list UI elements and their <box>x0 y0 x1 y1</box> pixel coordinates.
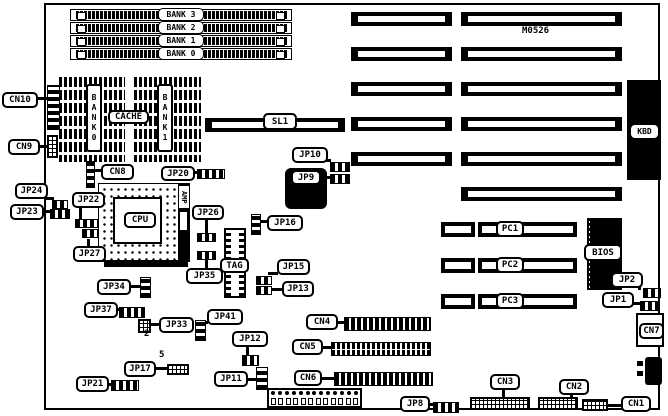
jp15-label: JP15 <box>277 259 310 275</box>
jp23-label: JP23 <box>10 204 44 220</box>
motherboard-diagram: BANK 3 BANK 2 BANK 1 BANK 0 BANK0 BANK1 … <box>0 0 668 416</box>
jp27-label: JP27 <box>73 246 106 262</box>
bank2-label: BANK 2 <box>158 21 204 34</box>
jp35-label: JP35 <box>186 268 223 284</box>
jp20-label: JP20 <box>161 166 195 181</box>
jp41-jumper <box>195 320 206 341</box>
isa-slot <box>461 117 622 131</box>
jp17-jumper <box>167 364 189 375</box>
isa-slot <box>461 187 622 201</box>
jp12-jumper <box>242 355 259 366</box>
cn6-label: CN6 <box>294 370 322 386</box>
cn2-header <box>538 397 578 410</box>
model-number: M0526 <box>522 26 549 36</box>
cn8-label: CN8 <box>101 164 134 180</box>
cn2-label: CN2 <box>559 379 589 395</box>
jp35-jumper <box>197 251 216 260</box>
amp-chip-slot <box>180 212 187 230</box>
cn4-connector <box>344 317 431 331</box>
leader-line <box>268 272 278 275</box>
jp24-label: JP24 <box>15 183 48 199</box>
tag-label: TAG <box>220 258 249 273</box>
jp10-label: JP10 <box>292 147 328 163</box>
isa-slot <box>351 47 452 61</box>
isa-slot <box>351 117 452 131</box>
cpu-bottom-bar <box>104 260 188 267</box>
bios-label: BIOS <box>584 244 622 261</box>
bank0-label: BANK 0 <box>158 47 204 60</box>
pc2-label: PC2 <box>496 257 524 273</box>
pci-slot-seg <box>478 294 577 309</box>
jp22-jumper <box>75 219 99 228</box>
leader-line <box>154 367 168 370</box>
jp8-label: JP8 <box>400 396 430 412</box>
kbd-label: KBD <box>630 124 659 139</box>
sl1-label: SL1 <box>263 113 297 130</box>
jp37-label: JP37 <box>84 302 118 318</box>
cn10-label: CN10 <box>2 92 38 108</box>
pci-slot-seg <box>478 258 577 273</box>
jp16-jumper <box>251 214 261 235</box>
jp24-jumper <box>52 200 68 209</box>
cn9-label: CN9 <box>8 139 40 155</box>
cn10-connector <box>47 85 60 130</box>
cn1-header <box>582 399 608 411</box>
jp9-label: JP9 <box>291 170 321 185</box>
jp1-jumper <box>640 301 660 311</box>
bank3-label: BANK 3 <box>158 8 204 21</box>
edge-connector <box>645 357 662 385</box>
leader-line <box>37 97 47 100</box>
cn9-connector <box>47 135 58 158</box>
jp1-label: JP1 <box>602 292 634 308</box>
power-connector <box>267 388 362 408</box>
jp41-label: JP41 <box>207 309 243 325</box>
cn8-connector <box>86 161 95 188</box>
isa-slot <box>461 12 622 26</box>
cache-bank0-label: BANK0 <box>86 84 102 152</box>
jp22-jumper2 <box>82 229 99 238</box>
jp26-jumper <box>197 233 216 242</box>
jp11-label: JP11 <box>214 371 248 387</box>
jp21-jumper <box>111 380 139 391</box>
jp16-label: JP16 <box>267 215 303 231</box>
cn5-label: CN5 <box>292 339 323 355</box>
cn1-label: CN1 <box>621 396 651 412</box>
jp34-jumper <box>140 277 151 298</box>
isa-slot <box>351 82 452 96</box>
cpu-label: CPU <box>124 212 156 228</box>
edge-connector-pin <box>637 371 643 376</box>
leader-line <box>607 404 622 407</box>
jp9-jumper <box>330 174 350 184</box>
jp15-jumper <box>256 276 272 285</box>
pci-slot-seg <box>441 258 475 273</box>
isa-slot <box>461 47 622 61</box>
pc3-label: PC3 <box>496 293 524 309</box>
isa-slot <box>461 152 622 166</box>
jp23-jumper <box>50 209 70 219</box>
jp26-label: JP26 <box>192 205 224 220</box>
isa-slot <box>351 12 452 26</box>
jp11-jumper <box>256 367 268 390</box>
isa-slot <box>351 152 452 166</box>
jp10-jumper <box>330 162 350 172</box>
jp33-pin1-number: 2 <box>144 329 149 339</box>
jp2-label: JP2 <box>611 272 643 288</box>
jp33-label: JP33 <box>159 317 194 333</box>
jp17-pin1-number: 5 <box>159 350 164 360</box>
edge-connector-pin <box>637 361 643 366</box>
jp2-jumper <box>643 288 661 298</box>
pci-slot-seg <box>441 294 475 309</box>
jp12-label: JP12 <box>232 331 268 347</box>
leader-line <box>205 218 208 234</box>
jp21-label: JP21 <box>76 376 109 392</box>
jp20-jumper <box>197 169 225 179</box>
jp8-jumper <box>433 402 459 413</box>
jp22-label: JP22 <box>72 192 105 208</box>
cache-bank1-label: BANK1 <box>157 84 173 152</box>
jp13-label: JP13 <box>282 281 314 297</box>
jp13-jumper <box>256 286 272 295</box>
cn6-connector <box>334 372 433 386</box>
jp17-label: JP17 <box>124 361 156 377</box>
pci-slot-seg <box>441 222 475 237</box>
cn3-label: CN3 <box>490 374 520 390</box>
cn3-header <box>470 397 530 410</box>
amp-chip-label: AMP <box>178 185 190 209</box>
jp34-label: JP34 <box>97 279 131 295</box>
pci-slot-seg <box>478 222 577 237</box>
cn4-label: CN4 <box>306 314 338 330</box>
cn5-connector <box>331 342 431 356</box>
cache-label: CACHE <box>108 110 149 124</box>
jp37-jumper <box>119 307 145 318</box>
pc1-label: PC1 <box>496 221 524 237</box>
bank1-label: BANK 1 <box>158 34 204 47</box>
isa-slot <box>461 82 622 96</box>
cn7-label: CN7 <box>639 323 664 339</box>
